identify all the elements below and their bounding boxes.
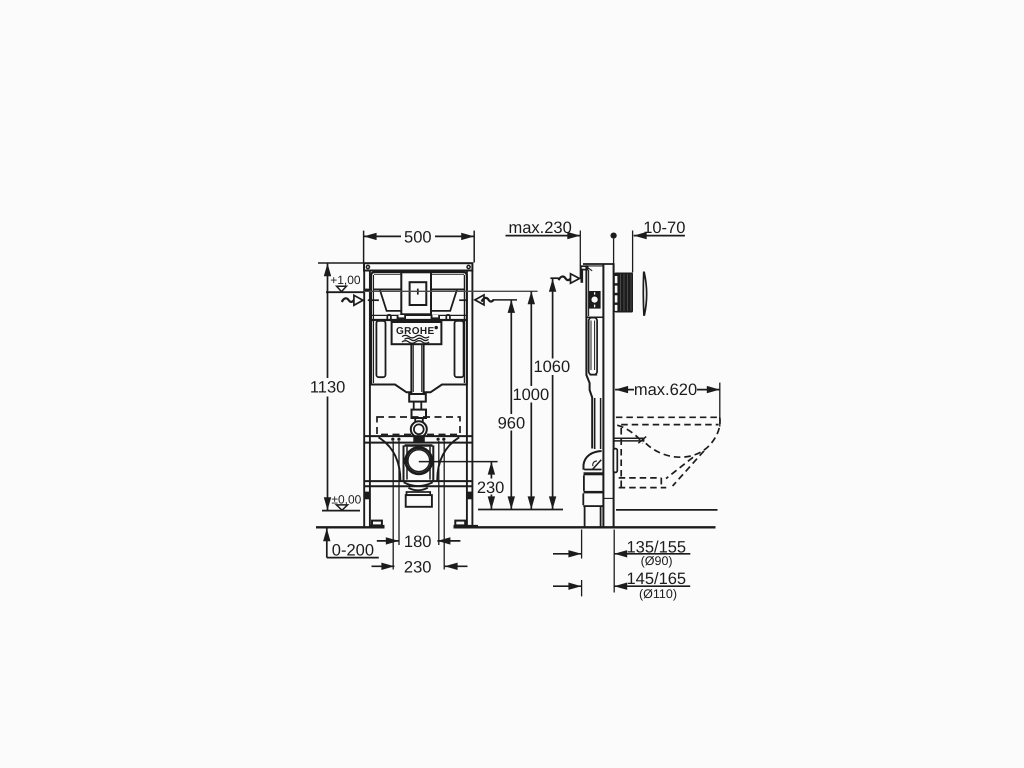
svg-text:0-200: 0-200: [332, 542, 374, 560]
svg-text:960: 960: [498, 415, 526, 433]
svg-text:1060: 1060: [533, 358, 570, 376]
svg-text:500: 500: [404, 229, 432, 247]
svg-text:10-70: 10-70: [643, 219, 685, 237]
svg-text:GROHE: GROHE: [396, 326, 435, 337]
svg-text:(Ø110): (Ø110): [639, 587, 677, 601]
svg-text:(Ø90): (Ø90): [641, 554, 673, 568]
svg-text:max.230: max.230: [509, 219, 572, 237]
svg-text:180: 180: [404, 533, 432, 551]
svg-text:1130: 1130: [310, 379, 345, 397]
svg-text:230: 230: [477, 479, 505, 497]
svg-text:max.620: max.620: [634, 381, 697, 399]
svg-text:230: 230: [404, 558, 432, 576]
svg-text:145/165: 145/165: [626, 570, 686, 588]
svg-text:1000: 1000: [512, 386, 549, 404]
svg-text:+1,00: +1,00: [330, 273, 361, 287]
